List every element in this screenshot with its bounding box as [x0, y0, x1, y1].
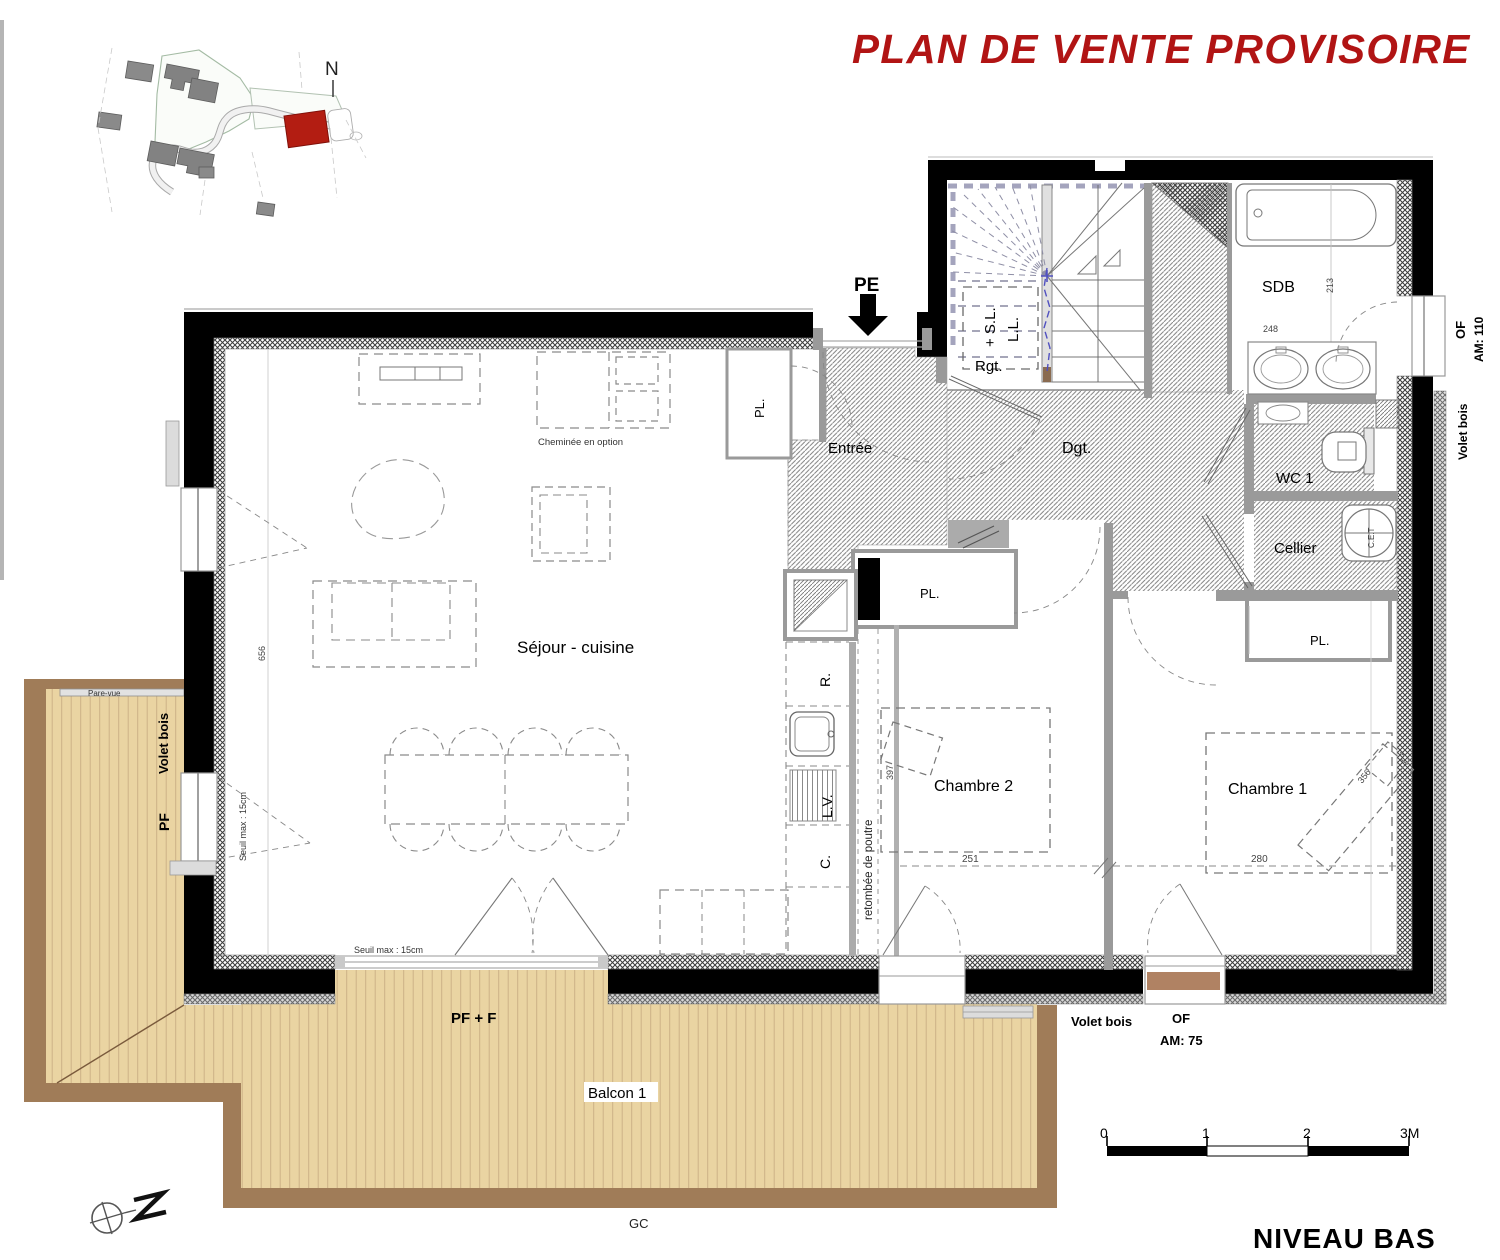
svg-text:Volet bois: Volet bois [156, 713, 171, 774]
svg-text:3M: 3M [1400, 1125, 1419, 1141]
svg-text:PF: PF [156, 813, 172, 831]
svg-text:1: 1 [1202, 1125, 1210, 1141]
svg-text:NIVEAU BAS: NIVEAU BAS [1253, 1223, 1436, 1254]
svg-text:PLAN DE VENTE PROVISOIRE: PLAN DE VENTE PROVISOIRE [852, 26, 1471, 72]
svg-text:PE: PE [854, 275, 879, 296]
svg-text:280: 280 [1251, 854, 1268, 865]
svg-text:Rgt.: Rgt. [975, 358, 1003, 375]
svg-text:Séjour - cuisine: Séjour - cuisine [517, 638, 634, 657]
svg-text:retombée de poutre: retombée de poutre [863, 820, 875, 920]
svg-text:Balcon 1: Balcon 1 [588, 1085, 646, 1102]
svg-text:397: 397 [885, 765, 895, 780]
svg-text:PL.: PL. [1310, 633, 1330, 648]
svg-text:Cheminée en option: Cheminée en option [538, 437, 623, 448]
svg-text:C.E.T: C.E.T [1367, 527, 1376, 548]
svg-text:+ S.L.: + S.L. [982, 307, 999, 347]
svg-text:251: 251 [962, 854, 979, 865]
svg-text:213: 213 [1325, 278, 1335, 293]
svg-text:SDB: SDB [1262, 279, 1295, 296]
svg-text:OF: OF [1172, 1011, 1190, 1026]
svg-text:Chambre 1: Chambre 1 [1228, 781, 1307, 798]
svg-text:R.: R. [817, 673, 833, 687]
svg-text:OF: OF [1453, 321, 1468, 339]
svg-text:PL.: PL. [752, 398, 767, 418]
svg-text:656: 656 [257, 646, 267, 661]
svg-text:Dgt.: Dgt. [1062, 440, 1091, 457]
svg-text:Volet bois: Volet bois [1456, 403, 1470, 460]
svg-text:PF + F: PF + F [451, 1010, 496, 1027]
svg-text:AM: 110: AM: 110 [1472, 316, 1486, 362]
svg-text:Entrée: Entrée [828, 440, 872, 457]
svg-text:Seuil max : 15cm: Seuil max : 15cm [354, 945, 423, 955]
svg-text:Chambre 2: Chambre 2 [934, 778, 1013, 795]
svg-text:C.: C. [817, 855, 833, 869]
svg-text:L.V.: L.V. [819, 794, 835, 818]
svg-text:WC 1: WC 1 [1276, 470, 1314, 487]
svg-text:Seuil max : 15cm: Seuil max : 15cm [238, 792, 248, 861]
svg-text:Pare-vue: Pare-vue [88, 689, 121, 698]
svg-text:Volet bois: Volet bois [1071, 1014, 1132, 1029]
svg-text:0: 0 [1100, 1125, 1108, 1141]
svg-text:248: 248 [1263, 324, 1278, 334]
svg-text:PL.: PL. [920, 586, 940, 601]
svg-text:GC: GC [629, 1216, 649, 1231]
svg-text:AM: 75: AM: 75 [1160, 1033, 1203, 1048]
svg-text:L.L.: L.L. [1005, 317, 1022, 342]
svg-text:N: N [325, 59, 339, 80]
svg-text:Cellier: Cellier [1274, 540, 1317, 557]
svg-text:2: 2 [1303, 1125, 1311, 1141]
